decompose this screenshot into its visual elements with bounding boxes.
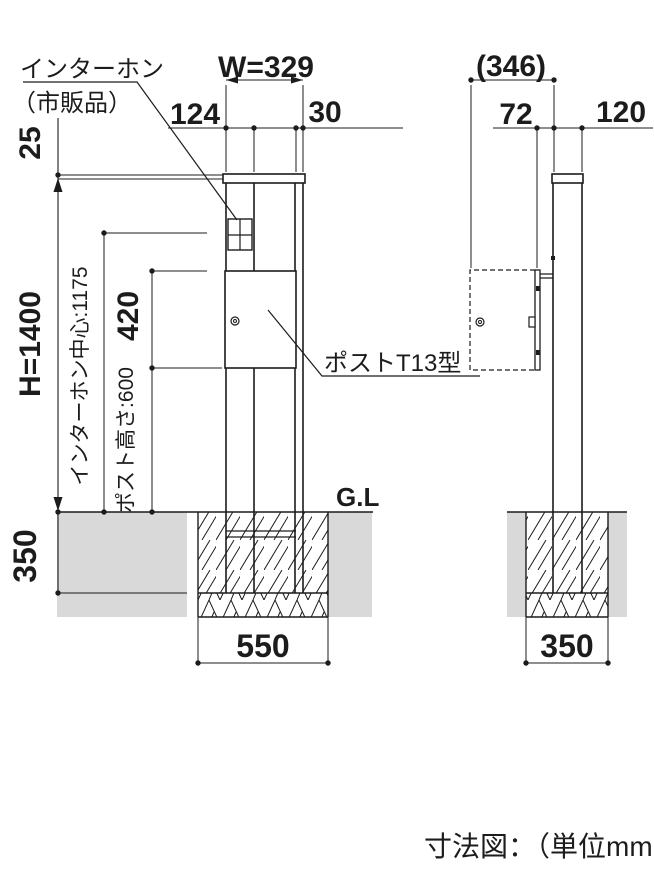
dim-box-depth: 72 [499, 98, 532, 131]
dim-overall-depth: (346) [476, 50, 546, 83]
dim-footing-width: 550 [236, 628, 289, 664]
arrow-down-icon [54, 497, 63, 511]
dim-post-bottom-height: ポスト高さ:600 [115, 367, 138, 513]
dim-edge-offset: 30 [308, 96, 341, 129]
dim-overall-height: H=1400 [14, 291, 47, 397]
front-foundation [198, 512, 328, 617]
hinge-bottom [536, 350, 540, 355]
ground-level-label: G.L [336, 482, 379, 512]
side-view: (346) 72 120 350 [468, 50, 653, 666]
intercom-box [228, 219, 252, 250]
dim-intercom-center-height: インターホン中心:1175 [69, 267, 92, 486]
post-box-label: ポストT13型 [324, 350, 461, 377]
post-cap-front [223, 174, 305, 183]
dim-cap-width: W=329 [218, 51, 314, 84]
dim-post-box-height: 420 [112, 291, 145, 341]
side-top-dimensions: (346) 72 120 [468, 50, 653, 268]
intercom-label-line1: インターホン [20, 56, 164, 83]
front-footing-dimension: 550 [195, 617, 330, 666]
intercom-label-line2: （市販品） [12, 90, 132, 117]
lock-icon-side [476, 318, 484, 326]
dim-post-depth: 120 [596, 96, 646, 129]
front-view: インターホン （市販品） ポストT13型 G.L W=329 124 30 25… [7, 51, 480, 666]
mount-bolt [551, 256, 555, 260]
lock-knob [529, 317, 535, 327]
arrow-up-icon [54, 178, 63, 192]
post-box-side [470, 270, 553, 370]
front-top-dimensions: W=329 124 30 [168, 51, 403, 172]
mount-bracket [540, 274, 553, 278]
dimension-drawing: インターホン （市販品） ポストT13型 G.L W=329 124 30 25… [0, 0, 654, 881]
dim-side-footing-width: 350 [540, 628, 593, 664]
diagram-caption: 寸法図：（単位mm） [424, 831, 654, 862]
post-cap-side [552, 174, 583, 183]
dim-cap-clearance: 25 [14, 126, 47, 159]
hinge-top [536, 286, 540, 291]
dimension-diagram-page: インターホン （市販品） ポストT13型 G.L W=329 124 30 25… [0, 0, 654, 881]
dim-intercom-offset: 124 [170, 98, 220, 131]
open-door-outline [470, 270, 535, 370]
side-foundation [526, 512, 608, 617]
post-box-front [225, 271, 296, 368]
side-footing-dimension: 350 [523, 617, 610, 666]
dim-embed-depth: 350 [7, 529, 43, 582]
